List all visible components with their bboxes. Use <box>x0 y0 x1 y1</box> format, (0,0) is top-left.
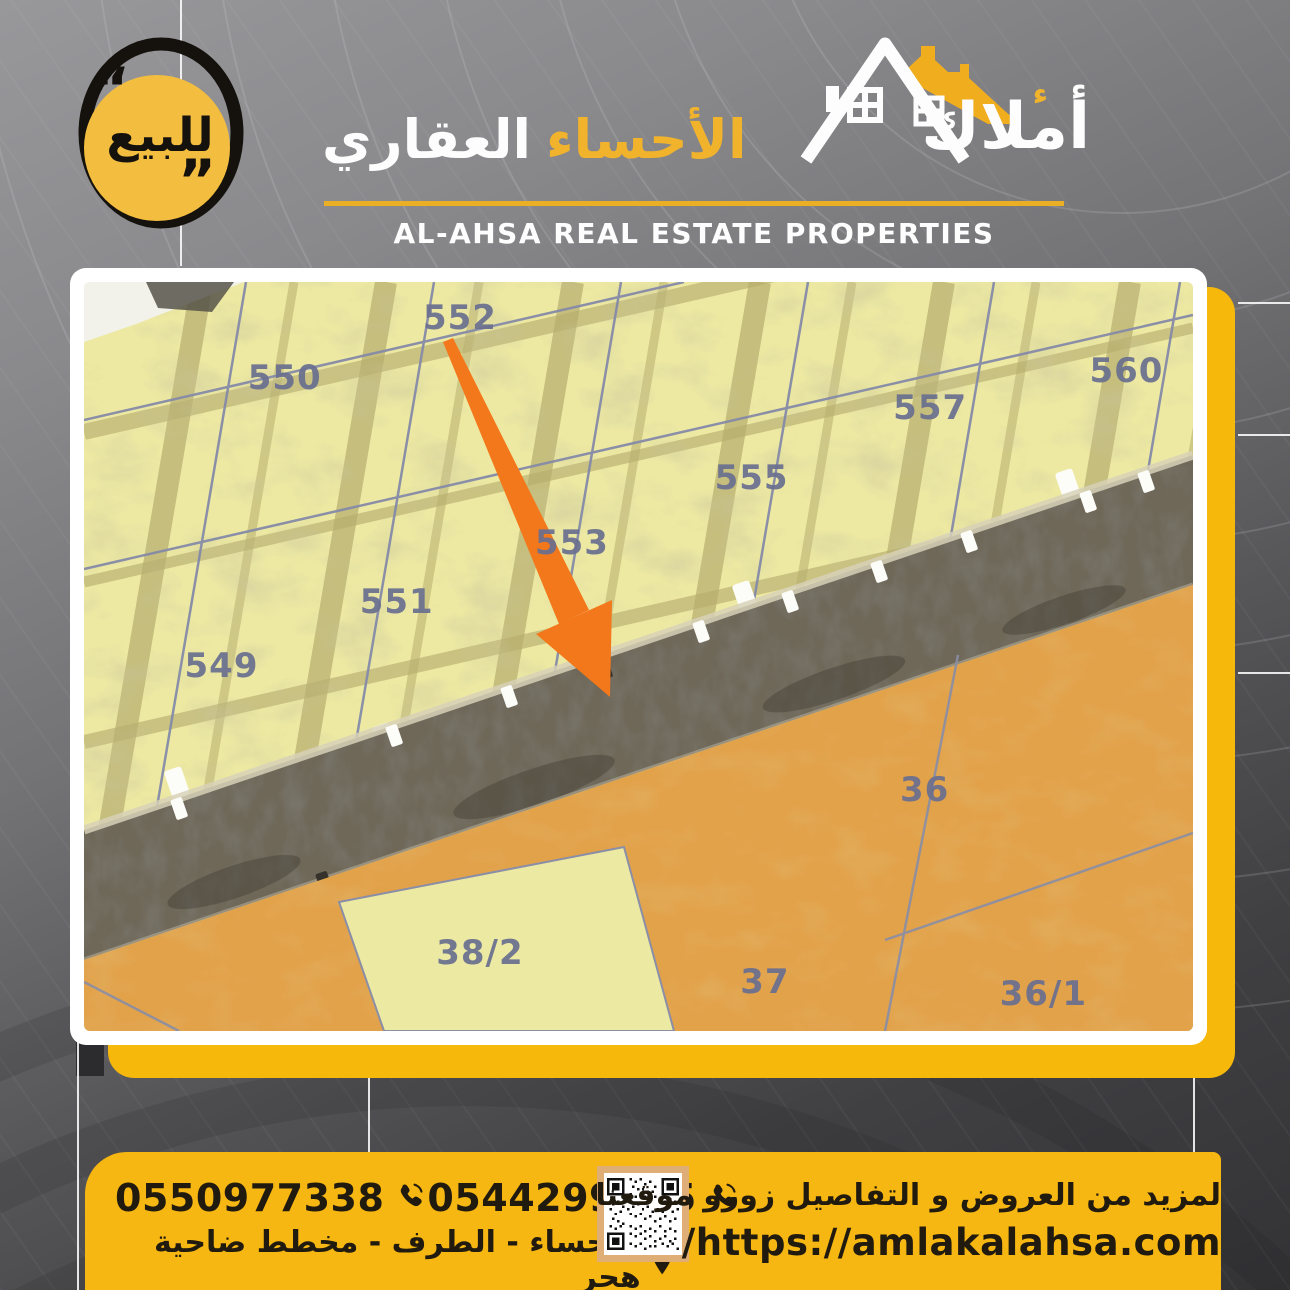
brand-logo: أملاك ء الأحساء العقاري AL-AHSA REAL EST… <box>320 25 1090 255</box>
grid-line-h1 <box>1238 302 1290 304</box>
location-text: الاحساء - الطرف - مخطط ضاحية هجر <box>115 1225 641 1290</box>
brand-word-alahsa: الأحساء <box>546 113 746 167</box>
parcel-label: 38/2 <box>436 933 523 973</box>
parcel-label: 557 <box>893 388 967 428</box>
phone-number-1[interactable]: 0550977338 <box>115 1176 384 1220</box>
brand-caption-en: AL-AHSA REAL ESTATE PROPERTIES <box>324 217 1064 250</box>
website-link[interactable]: /https://amlakalahsa.com <box>682 1221 1221 1264</box>
brand-hamza-accent: ء <box>1033 77 1048 112</box>
for-sale-badge: “ للبيع ” <box>70 30 270 245</box>
brand-word-alaqari: العقاري <box>322 113 531 167</box>
footer-bar: 0550977338 0544299895 الاحساء - <box>85 1152 1221 1290</box>
parcel-label: 36 <box>900 770 949 810</box>
parcel-label: 550 <box>248 358 322 398</box>
map-card: 5525505605575555535515493638/23736/1 <box>70 268 1207 1045</box>
grid-line-v4 <box>1193 1078 1195 1152</box>
parcel-label: 552 <box>423 298 497 338</box>
parcel-label: 551 <box>360 582 434 622</box>
grid-line-h3 <box>1238 672 1290 674</box>
grid-line-v2 <box>77 1036 79 1290</box>
parcel-label: 36/1 <box>1000 974 1087 1014</box>
grid-line-h2 <box>1238 434 1290 436</box>
badge-label: للبيع <box>70 108 250 163</box>
phone-item-1[interactable]: 0550977338 <box>115 1176 427 1220</box>
parcel-label-layer: 5525505605575555535515493638/23736/1 <box>84 282 1193 1031</box>
badge-close-quote: ” <box>178 152 216 210</box>
parcel-label: 37 <box>740 962 789 1002</box>
location-line: الاحساء - الطرف - مخطط ضاحية هجر <box>115 1225 675 1290</box>
flyer-canvas: “ للبيع ” أملاك ء الأح <box>0 0 1290 1290</box>
parcel-label: 560 <box>1089 351 1163 391</box>
brand-word-amlak: أملاك <box>921 95 1090 159</box>
grid-line-v3 <box>368 1078 370 1152</box>
parcel-label: 555 <box>715 458 789 498</box>
parcel-label: 553 <box>535 523 609 563</box>
offers-block: لمزيد من العروض و التفاصيل زورو موقعنا /… <box>705 1178 1221 1264</box>
offers-text: لمزيد من العروض و التفاصيل زورو موقعنا <box>705 1178 1221 1213</box>
contact-block: 0550977338 0544299895 الاحساء - <box>115 1176 675 1290</box>
parcel-label: 549 <box>185 646 259 686</box>
brand-underline <box>324 201 1064 206</box>
aerial-map: 5525505605575555535515493638/23736/1 <box>84 282 1193 1031</box>
phone-icon <box>393 1181 427 1215</box>
